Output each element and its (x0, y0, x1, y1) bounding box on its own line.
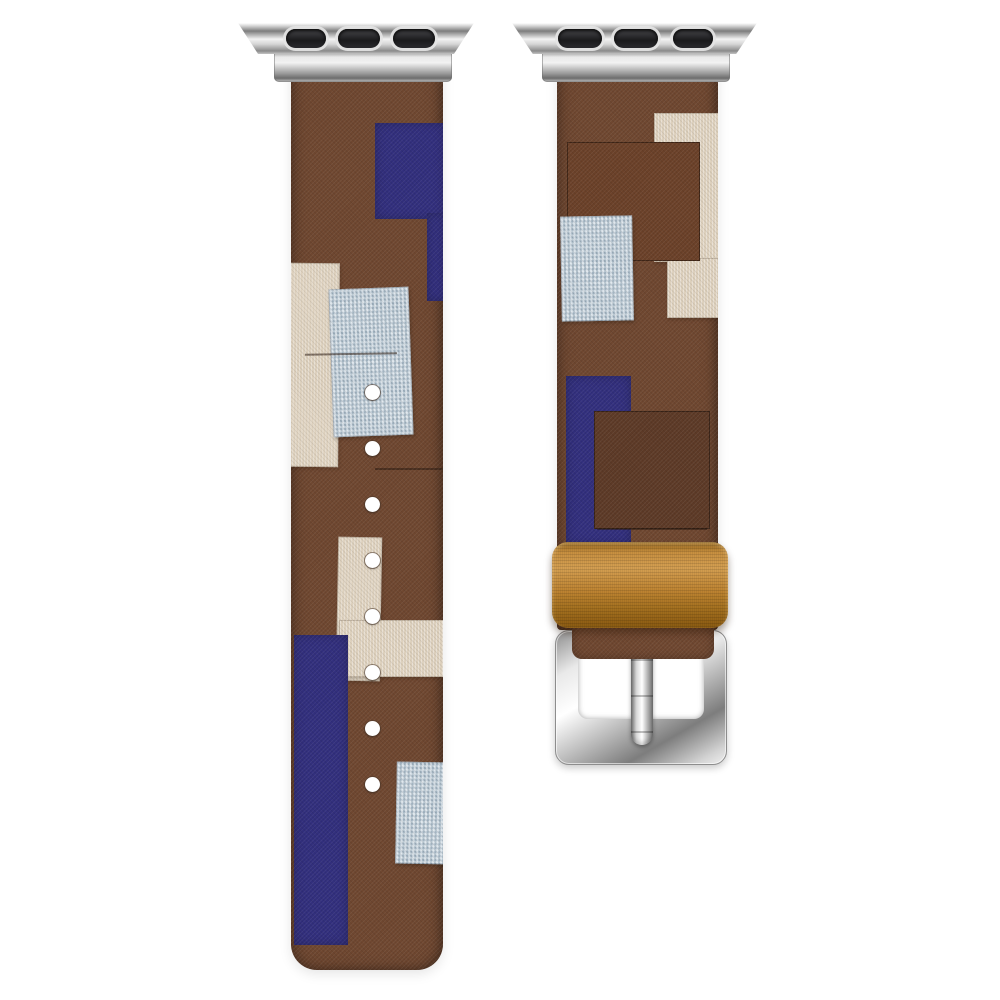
strap-hole-2 (365, 441, 380, 456)
strap-hole-3 (365, 497, 380, 512)
strap-hole-1 (365, 385, 380, 400)
left-patch-navy-top-extension (427, 213, 443, 301)
strap-hole-6 (365, 665, 380, 680)
left-patch-navy-top (375, 123, 443, 219)
right-patch-cream-lower-step (667, 258, 718, 318)
right-strap-assembly (512, 22, 757, 812)
strap-hole-5 (365, 609, 380, 624)
left-adapter-slot-1 (286, 29, 326, 48)
strap-hole-4 (365, 553, 380, 568)
right-adapter-slot-3 (673, 29, 713, 48)
watch-band-product-photo (0, 0, 1000, 1000)
left-adapter-clamp (274, 50, 452, 82)
right-adapter-clamp (542, 50, 730, 82)
strap-hole-7 (365, 721, 380, 736)
left-seam-line-2 (375, 468, 443, 470)
left-patch-cream-L-horizontal (339, 620, 443, 677)
left-adapter-slot-2 (338, 29, 380, 48)
left-adapter-slot-3 (393, 29, 435, 48)
left-strap-body (291, 58, 443, 970)
left-patch-navy-bottom (294, 635, 348, 945)
keeper-loop (552, 542, 728, 628)
right-adapter-slot-2 (614, 29, 658, 48)
left-lug-adapter (238, 23, 474, 54)
strap-hole-8 (365, 777, 380, 792)
left-patch-lightblue-bottom (395, 762, 443, 865)
left-strap-assembly (238, 22, 474, 970)
right-patch-brown-dark-center (594, 411, 710, 529)
right-seam-line-1 (597, 528, 707, 530)
right-adapter-slot-1 (558, 29, 602, 48)
left-patch-lightblue-upper (328, 287, 413, 438)
right-patch-lightblue (560, 215, 634, 321)
right-lug-adapter (512, 23, 757, 54)
